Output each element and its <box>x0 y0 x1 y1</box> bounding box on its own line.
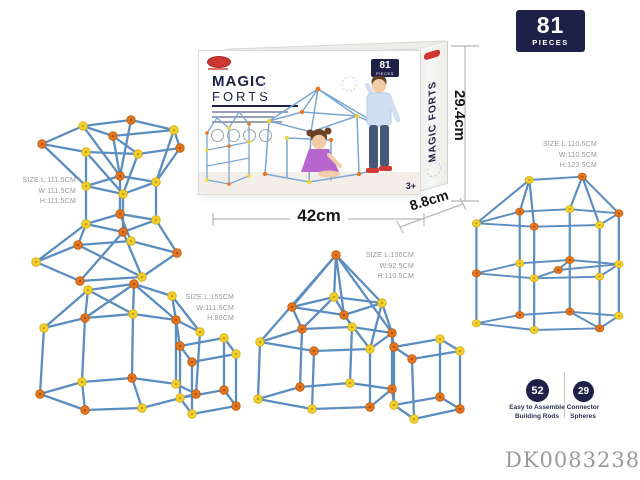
size-label-hourglass: SIZE L:111.5CM W:111.5CM H:111.5CM <box>8 176 76 208</box>
product-box: 81 PIECES MAGIC FORTS <box>198 50 421 195</box>
height-dimension: 29.4cm <box>451 90 468 141</box>
size-line: W:110.5CM <box>529 151 597 162</box>
spheres-label-line: Spheres <box>551 413 615 422</box>
size-line: W:111.5CM <box>8 187 76 198</box>
size-line: H:110.5CM <box>346 272 414 283</box>
box-artwork <box>199 76 420 194</box>
size-line: SIZE L:136CM <box>346 251 414 262</box>
product-sheet: 81 PIECES MAGIC FORTS 81 PIECES MAGIC FO… <box>0 0 640 480</box>
box-pieces-badge: 81 PIECES <box>371 59 399 77</box>
box-side-title: MAGIC FORTS <box>419 75 447 169</box>
size-line: W:111.5CM <box>166 304 234 315</box>
width-dimension: 42cm <box>290 206 348 226</box>
size-line: W:92.5CM <box>346 262 414 273</box>
size-line: SIZE L:110.5CM <box>529 140 597 151</box>
girl-art <box>301 128 340 178</box>
box-pieces-number: 81 <box>379 61 390 71</box>
brand-logo-small <box>424 49 440 61</box>
size-line: SIZE L:111.5CM <box>8 176 76 187</box>
size-line: H:80CM <box>166 314 234 325</box>
box-pieces-label: PIECES <box>376 71 394 76</box>
spheres-count-badge: 29 <box>573 381 594 402</box>
brand-logo-tagline <box>208 68 228 70</box>
spheres-count: 29 <box>578 386 589 397</box>
fort-art-balls <box>205 87 389 186</box>
rods-count: 52 <box>531 385 543 397</box>
size-line: SIZE L:155CM <box>166 293 234 304</box>
spheres-label-line: Connector <box>551 404 615 413</box>
boy-art <box>366 76 398 173</box>
spheres-count-label: Connector Spheres <box>551 404 615 422</box>
size-label-dome: SIZE L:155CM W:111.5CM H:80CM <box>166 293 234 325</box>
size-label-tower: SIZE L:110.5CM W:110.5CM H:123.5CM <box>529 140 597 172</box>
brand-logo <box>207 56 231 68</box>
box-side-panel: MAGIC FORTS <box>419 41 448 192</box>
age-label: 3+ <box>406 181 416 191</box>
size-label-pyramid: SIZE L:136CM W:92.5CM H:110.5CM <box>346 251 414 283</box>
rods-count-badge: 52 <box>526 379 549 402</box>
size-line: H:123.5CM <box>529 161 597 172</box>
size-line: H:111.5CM <box>8 197 76 208</box>
